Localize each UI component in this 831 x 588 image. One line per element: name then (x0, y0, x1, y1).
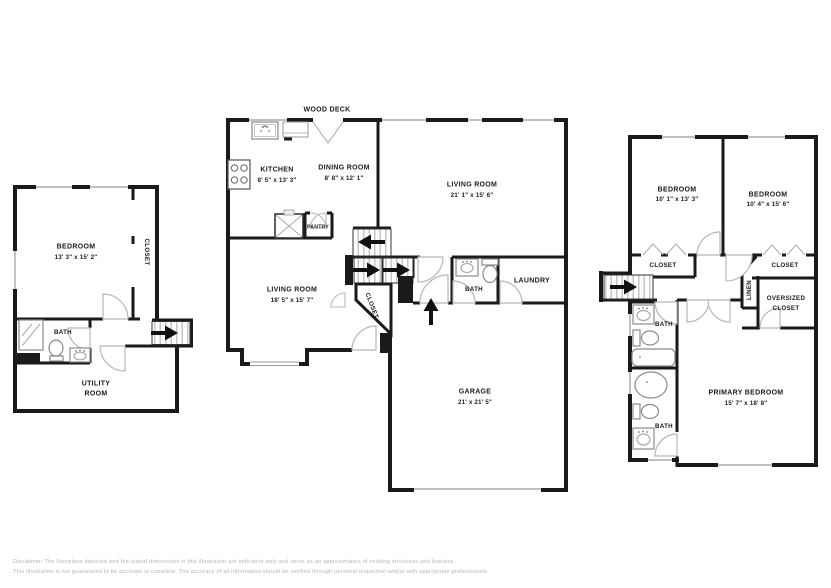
label-wood-deck: WOOD DECK (303, 107, 350, 114)
label-dining-room-dims: 8' 8" x 12' 1" (324, 176, 363, 182)
label-upper-bedroom-left-dims: 10' 1" x 13' 3" (656, 197, 699, 203)
disclaimer-line-1: Disclaimer: The floorplans depicted and … (13, 559, 455, 565)
label-living-room-lower: LIVING ROOM (267, 287, 317, 294)
stove-icon (228, 160, 250, 189)
label-closet-right: CLOSET (772, 263, 799, 269)
oval-tub-icon (635, 372, 667, 398)
floorplan-graphics (0, 0, 831, 588)
left-unit-details (12, 184, 191, 372)
label-bath-upper: BATH (655, 322, 673, 328)
kitchen-sink-icon (252, 122, 278, 139)
toilet-icon (633, 330, 659, 346)
bathtub-icon (632, 349, 675, 366)
sink-icon (70, 348, 90, 362)
label-left-bedroom-dims: 13' 3" x 15' 2" (55, 255, 98, 261)
label-utility-room-1: UTILITY (82, 381, 111, 388)
label-primary-bedroom-dims: 15' 7" x 18' 8" (725, 401, 768, 407)
kitchen-island-icon (275, 210, 303, 238)
label-living-room-upper-dims: 21' 1" x 15' 6" (451, 193, 494, 199)
label-primary-bedroom: PRIMARY BEDROOM (709, 390, 784, 397)
label-kitchen-dims: 8' 5" x 13' 3" (257, 178, 296, 184)
label-upper-bedroom-right-dims: 10' 4" x 15' 6" (747, 202, 790, 208)
label-kitchen: KITCHEN (260, 167, 293, 174)
label-garage-dims: 21' x 21' 5" (458, 400, 492, 406)
label-closet-left: CLOSET (650, 263, 677, 269)
label-main-bath: BATH (465, 287, 483, 293)
shower-icon (19, 320, 43, 350)
sink-icon (633, 428, 654, 449)
label-left-bedroom: BEDROOM (57, 244, 96, 251)
label-utility-room-2: ROOM (85, 391, 108, 398)
label-left-bath: BATH (54, 330, 72, 336)
label-laundry: LAUNDRY (514, 278, 550, 285)
toilet-icon (49, 340, 63, 361)
label-oversized-closet-2: CLOSET (773, 306, 800, 312)
disclaimer-line-2: This illustration is not guaranteed to b… (13, 569, 489, 575)
toilet-icon (482, 259, 498, 283)
label-upper-bedroom-right: BEDROOM (749, 192, 788, 199)
sink-icon (633, 305, 654, 324)
label-dining-room: DINING ROOM (318, 165, 370, 172)
floorplan-page: BEDROOM 13' 3" x 15' 2" CLOSET BATH UTIL… (0, 0, 831, 588)
main-unit (226, 118, 568, 492)
label-left-closet: CLOSET (143, 239, 149, 266)
label-bath-lower: BATH (655, 424, 673, 430)
label-oversized-closet-1: OVERSIZED (767, 296, 805, 302)
label-garage: GARAGE (459, 389, 492, 396)
dishwasher-icon (283, 122, 308, 141)
label-upper-bedroom-left: BEDROOM (658, 187, 697, 194)
label-linen: LINEN (747, 280, 753, 300)
toilet-icon (633, 404, 659, 419)
bath-sink-icon (456, 259, 478, 276)
label-pantry: PANTRY (307, 225, 329, 230)
label-living-room-upper: LIVING ROOM (447, 182, 497, 189)
label-living-room-lower-dims: 18' 5" x 15' 7" (271, 298, 314, 304)
